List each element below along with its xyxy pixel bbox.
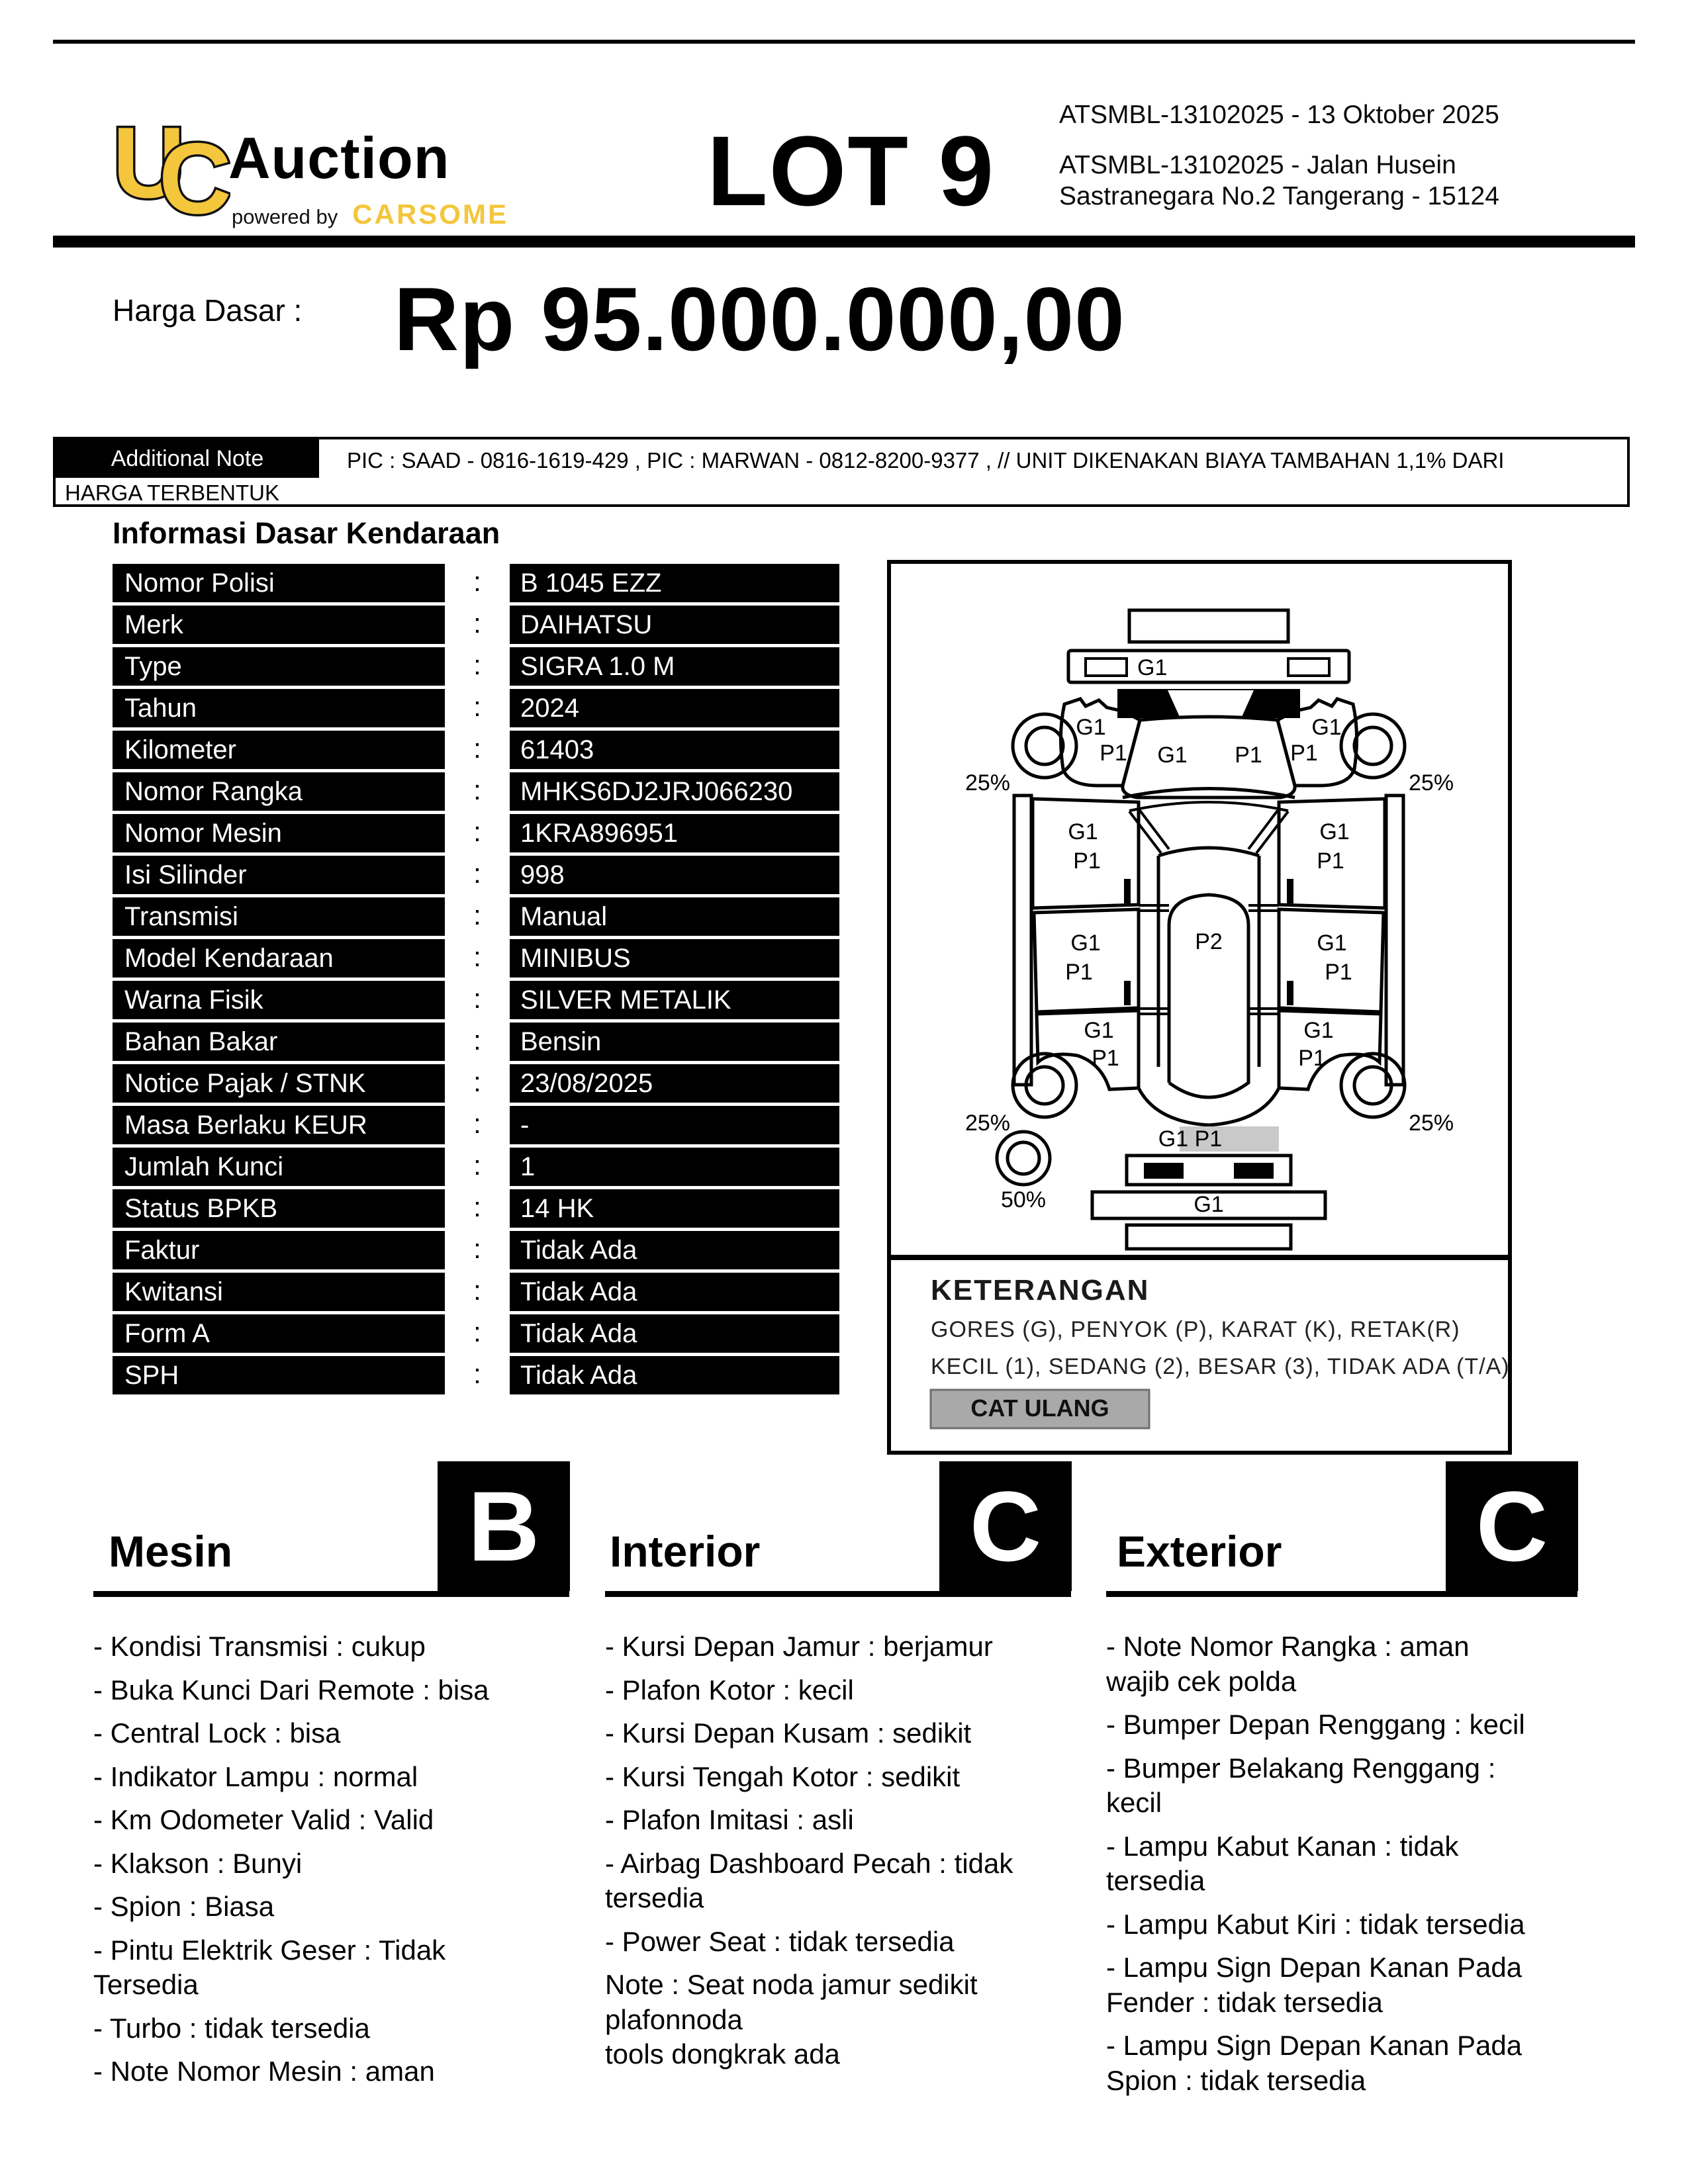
row-colon: : xyxy=(445,772,510,811)
row-colon: : xyxy=(445,689,510,727)
roof-penyok-label: P2 xyxy=(1195,929,1223,954)
auction-code-location: ATSMBL-13102025 - Jalan Husein Sastraneg… xyxy=(1059,150,1642,212)
row-label: Kwitansi xyxy=(113,1273,445,1311)
table-row: SPH : Tidak Ada xyxy=(113,1356,841,1394)
list-item: - Note Nomor Mesin : aman xyxy=(93,2054,557,2089)
additional-note-box: Additional Note PIC : SAAD - 0816-1619-4… xyxy=(53,437,1630,507)
car-top-view-diagram: G1 G1 P1 G1 P1 G1 P1 25% 25% P2 xyxy=(891,564,1508,1451)
hood-shape xyxy=(1123,717,1295,797)
front-tire-right-wear: 25% xyxy=(1409,770,1454,796)
fender-fr-penyok-label: P1 xyxy=(1290,741,1318,766)
row-value: SILVER METALIK xyxy=(510,981,839,1019)
door-fl-gores-label: G1 xyxy=(1068,819,1098,844)
table-row: Nomor Mesin : 1KRA896951 xyxy=(113,814,841,852)
table-row: Kwitansi : Tidak Ada xyxy=(113,1273,841,1311)
rocker-left-shape xyxy=(1014,796,1031,1085)
row-colon: : xyxy=(445,606,510,644)
row-value: MHKS6DJ2JRJ066230 xyxy=(510,772,839,811)
list-item: - Central Lock : bisa xyxy=(93,1716,557,1751)
logo-tagline: powered by CARSOME xyxy=(232,199,508,230)
carsome-wordmark: CARSOME xyxy=(352,199,508,230)
fog-lamp-right-shape xyxy=(1288,659,1329,676)
uc-auction-logo-icon: U C xyxy=(111,106,230,222)
table-row: Nomor Rangka : MHKS6DJ2JRJ066230 xyxy=(113,772,841,811)
front-wheel-left-inner xyxy=(1026,727,1063,764)
table-row: Kilometer : 61403 xyxy=(113,731,841,769)
list-item: - Km Odometer Valid : Valid xyxy=(93,1803,557,1838)
row-colon: : xyxy=(445,564,510,602)
list-item: - Pintu Elektrik Geser : Tidak Tersedia xyxy=(93,1933,557,2003)
quarter-rr-gores-label: G1 xyxy=(1303,1018,1333,1043)
base-price-value: Rp 95.000.000,00 xyxy=(394,267,1125,371)
row-colon: : xyxy=(445,814,510,852)
row-value: 1KRA896951 xyxy=(510,814,839,852)
row-label: Nomor Rangka xyxy=(113,772,445,811)
row-value: 14 HK xyxy=(510,1189,839,1228)
quarter-rl-gores-label: G1 xyxy=(1084,1018,1113,1043)
rear-tire-left-wear: 25% xyxy=(965,1111,1010,1136)
hood-gores-label: G1 xyxy=(1157,743,1187,768)
row-label: Warna Fisik xyxy=(113,981,445,1019)
row-label: Kilometer xyxy=(113,731,445,769)
table-row: Warna Fisik : SILVER METALIK xyxy=(113,981,841,1019)
row-value: 1 xyxy=(510,1148,839,1186)
row-label: Faktur xyxy=(113,1231,445,1269)
row-label: Jumlah Kunci xyxy=(113,1148,445,1186)
list-item: - Airbag Dashboard Pecah : tidak tersedi… xyxy=(605,1846,1076,1916)
door-fl-penyok-label: P1 xyxy=(1073,848,1101,874)
row-value: Tidak Ada xyxy=(510,1356,839,1394)
row-colon: : xyxy=(445,1314,510,1353)
row-value: Bensin xyxy=(510,1023,839,1061)
table-row: Transmisi : Manual xyxy=(113,897,841,936)
list-item: - Plafon Kotor : kecil xyxy=(605,1673,1076,1708)
section-underline xyxy=(605,1591,1071,1597)
list-item: - Lampu Sign Depan Kanan Pada Fender : t… xyxy=(1106,1950,1583,2020)
interior-item-list: - Kursi Depan Jamur : berjamur- Plafon K… xyxy=(605,1629,1076,2081)
row-value: Tidak Ada xyxy=(510,1314,839,1353)
section-title-mesin: Mesin xyxy=(109,1526,232,1576)
row-value: Manual xyxy=(510,897,839,936)
table-row: Form A : Tidak Ada xyxy=(113,1314,841,1353)
front-plate-shape xyxy=(1129,610,1288,642)
row-colon: : xyxy=(445,1189,510,1228)
door-fr-gores-label: G1 xyxy=(1319,819,1349,844)
row-value: 23/08/2025 xyxy=(510,1064,839,1103)
door-fr-penyok-label: P1 xyxy=(1317,848,1344,874)
row-label: Type xyxy=(113,647,445,686)
fender-fl-gores-label: G1 xyxy=(1076,715,1105,740)
list-item: - Kursi Depan Kusam : sedikit xyxy=(605,1716,1076,1751)
row-value: DAIHATSU xyxy=(510,606,839,644)
row-label: Model Kendaraan xyxy=(113,939,445,978)
keterangan-legend-size: KECIL (1), SEDANG (2), BESAR (3), TIDAK … xyxy=(931,1354,1508,1379)
list-item: - Lampu Sign Depan Kanan Pada Spion : ti… xyxy=(1106,2028,1583,2098)
grade-badge-exterior: C xyxy=(1446,1461,1578,1591)
row-colon: : xyxy=(445,1356,510,1394)
row-value: Tidak Ada xyxy=(510,1231,839,1269)
rear-plate-shape xyxy=(1127,1225,1291,1249)
row-colon: : xyxy=(445,1273,510,1311)
list-item: - Buka Kunci Dari Remote : bisa xyxy=(93,1673,557,1708)
door-fl-handle-mark xyxy=(1124,879,1131,903)
mesin-item-list: - Kondisi Transmisi : cukup- Buka Kunci … xyxy=(93,1629,557,2098)
row-colon: : xyxy=(445,1023,510,1061)
logo-brand-text: Auction xyxy=(228,124,450,192)
fender-fl-penyok-label: P1 xyxy=(1100,741,1127,766)
row-label: Isi Silinder xyxy=(113,856,445,894)
row-value: MINIBUS xyxy=(510,939,839,978)
table-row: Faktur : Tidak Ada xyxy=(113,1231,841,1269)
quarter-rr-penyok-label: P1 xyxy=(1298,1046,1326,1071)
header-top-divider xyxy=(53,40,1635,44)
lot-title: LOT 9 xyxy=(707,114,995,228)
table-row: Isi Silinder : 998 xyxy=(113,856,841,894)
header-bottom-bar xyxy=(53,236,1635,248)
spare-tire-inner xyxy=(1008,1142,1039,1174)
table-row: Model Kendaraan : MINIBUS xyxy=(113,939,841,978)
table-row: Bahan Bakar : Bensin xyxy=(113,1023,841,1061)
row-label: Notice Pajak / STNK xyxy=(113,1064,445,1103)
list-item: - Klakson : Bunyi xyxy=(93,1846,557,1882)
front-tire-left-wear: 25% xyxy=(965,770,1010,796)
list-item: - Note Nomor Rangka : aman wajib cek pol… xyxy=(1106,1629,1583,1699)
row-label: Form A xyxy=(113,1314,445,1353)
row-colon: : xyxy=(445,981,510,1019)
logo-letter-c: C xyxy=(159,122,230,218)
row-label: Nomor Mesin xyxy=(113,814,445,852)
tailgate-label: G1 P1 xyxy=(1158,1126,1222,1152)
table-row: Jumlah Kunci : 1 xyxy=(113,1148,841,1186)
list-item: - Spion : Biasa xyxy=(93,1889,557,1925)
cowl-window-shape xyxy=(1168,690,1254,717)
door-rr-gores-label: G1 xyxy=(1317,931,1346,956)
roof-outline xyxy=(1158,848,1259,1067)
windshield-inner-arc xyxy=(1129,802,1288,811)
list-item: - Indikator Lampu : normal xyxy=(93,1760,557,1795)
row-colon: : xyxy=(445,1148,510,1186)
front-bumper-shape xyxy=(1068,651,1349,682)
table-row: Status BPKB : 14 HK xyxy=(113,1189,841,1228)
list-item: - Kursi Tengah Kotor : sedikit xyxy=(605,1760,1076,1795)
additional-note-text: PIC : SAAD - 0816-1619-429 , PIC : MARWA… xyxy=(347,448,1504,473)
row-label: Transmisi xyxy=(113,897,445,936)
spare-tire-icon xyxy=(997,1132,1050,1185)
row-colon: : xyxy=(445,856,510,894)
damage-diagram-box: G1 G1 P1 G1 P1 G1 P1 25% 25% P2 xyxy=(887,560,1512,1455)
list-item: - Bumper Belakang Renggang : kecil xyxy=(1106,1751,1583,1821)
table-row: Tahun : 2024 xyxy=(113,689,841,727)
keterangan-legend-damage: GORES (G), PENYOK (P), KARAT (K), RETAK(… xyxy=(931,1317,1460,1342)
section-title-exterior: Exterior xyxy=(1117,1526,1282,1576)
door-rr-penyok-label: P1 xyxy=(1325,960,1352,985)
powered-by-text: powered by xyxy=(232,205,338,229)
section-underline xyxy=(93,1591,569,1597)
vehicle-info-title: Informasi Dasar Kendaraan xyxy=(113,516,500,551)
door-rl-penyok-label: P1 xyxy=(1065,960,1093,985)
rear-reflector-right xyxy=(1234,1163,1274,1179)
row-value: 61403 xyxy=(510,731,839,769)
list-item: Note : Seat noda jamur sedikit plafonnod… xyxy=(605,1968,1076,2072)
grade-badge-interior: C xyxy=(939,1461,1072,1591)
row-colon: : xyxy=(445,1106,510,1144)
list-item: - Power Seat : tidak tersedia xyxy=(605,1925,1076,1960)
rear-tire-right-wear: 25% xyxy=(1409,1111,1454,1136)
cat-ulang-label: CAT ULANG xyxy=(970,1394,1109,1422)
section-underline xyxy=(1106,1591,1577,1597)
list-item: - Kondisi Transmisi : cukup xyxy=(93,1629,557,1664)
keterangan-title: KETERANGAN xyxy=(931,1274,1149,1306)
row-value: Tidak Ada xyxy=(510,1273,839,1311)
row-colon: : xyxy=(445,897,510,936)
front-bumper-label: G1 xyxy=(1137,655,1167,680)
door-rr-handle-mark xyxy=(1287,981,1293,1005)
fender-fr-gores-label: G1 xyxy=(1311,715,1341,740)
front-wheel-right-inner xyxy=(1354,727,1391,764)
fog-lamp-left-shape xyxy=(1086,659,1127,676)
additional-note-label: Additional Note xyxy=(56,439,319,478)
vehicle-info-table: Nomor Polisi : B 1045 EZZ Merk : DAIHATS… xyxy=(113,564,841,1398)
list-item: - Kursi Depan Jamur : berjamur xyxy=(605,1629,1076,1664)
quarter-rl-penyok-label: P1 xyxy=(1092,1046,1119,1071)
rear-reflector-left xyxy=(1144,1163,1184,1179)
row-label: Tahun xyxy=(113,689,445,727)
table-row: Masa Berlaku KEUR : - xyxy=(113,1106,841,1144)
door-rl-gores-label: G1 xyxy=(1070,931,1100,956)
table-row: Merk : DAIHATSU xyxy=(113,606,841,644)
row-label: Nomor Polisi xyxy=(113,564,445,602)
additional-note-text-continued: HARGA TERBENTUK xyxy=(65,480,279,506)
row-colon: : xyxy=(445,647,510,686)
front-wheel-left-icon xyxy=(1013,714,1076,778)
list-item: - Turbo : tidak tersedia xyxy=(93,2011,557,2046)
row-colon: : xyxy=(445,1231,510,1269)
list-item: - Lampu Kabut Kiri : tidak tersedia xyxy=(1106,1907,1583,1942)
row-value: B 1045 EZZ xyxy=(510,564,839,602)
section-title-interior: Interior xyxy=(610,1526,760,1576)
table-row: Type : SIGRA 1.0 M xyxy=(113,647,841,686)
auction-header-info: ATSMBL-13102025 - 13 Oktober 2025 ATSMBL… xyxy=(1059,99,1642,212)
keterangan-divider xyxy=(891,1255,1508,1260)
table-row: Nomor Polisi : B 1045 EZZ xyxy=(113,564,841,602)
list-item: - Lampu Kabut Kanan : tidak tersedia xyxy=(1106,1829,1583,1899)
front-wheel-right-icon xyxy=(1341,714,1405,778)
list-item: - Bumper Depan Renggang : kecil xyxy=(1106,1707,1583,1743)
roof-panel-shape xyxy=(1169,895,1248,1097)
door-fr-handle-mark xyxy=(1287,879,1293,903)
row-value: 2024 xyxy=(510,689,839,727)
row-label: Masa Berlaku KEUR xyxy=(113,1106,445,1144)
row-label: Bahan Bakar xyxy=(113,1023,445,1061)
hood-penyok-label: P1 xyxy=(1235,743,1262,768)
exterior-item-list: - Note Nomor Rangka : aman wajib cek pol… xyxy=(1106,1629,1583,2107)
row-label: Status BPKB xyxy=(113,1189,445,1228)
grade-badge-mesin: B xyxy=(438,1461,570,1591)
row-value: - xyxy=(510,1106,839,1144)
row-colon: : xyxy=(445,939,510,978)
tailgate-outline xyxy=(1139,1088,1279,1125)
row-value: SIGRA 1.0 M xyxy=(510,647,839,686)
row-label: SPH xyxy=(113,1356,445,1394)
auction-code-date: ATSMBL-13102025 - 13 Oktober 2025 xyxy=(1059,99,1642,131)
base-price-label: Harga Dasar : xyxy=(113,293,302,328)
row-value: 998 xyxy=(510,856,839,894)
list-item: - Plafon Imitasi : asli xyxy=(605,1803,1076,1838)
door-rl-handle-mark xyxy=(1124,981,1131,1005)
rear-bumper-lower-label: G1 xyxy=(1194,1192,1223,1217)
table-row: Notice Pajak / STNK : 23/08/2025 xyxy=(113,1064,841,1103)
rocker-right-shape xyxy=(1386,796,1403,1085)
row-colon: : xyxy=(445,731,510,769)
row-colon: : xyxy=(445,1064,510,1103)
row-label: Merk xyxy=(113,606,445,644)
spare-tire-wear: 50% xyxy=(1001,1187,1046,1212)
